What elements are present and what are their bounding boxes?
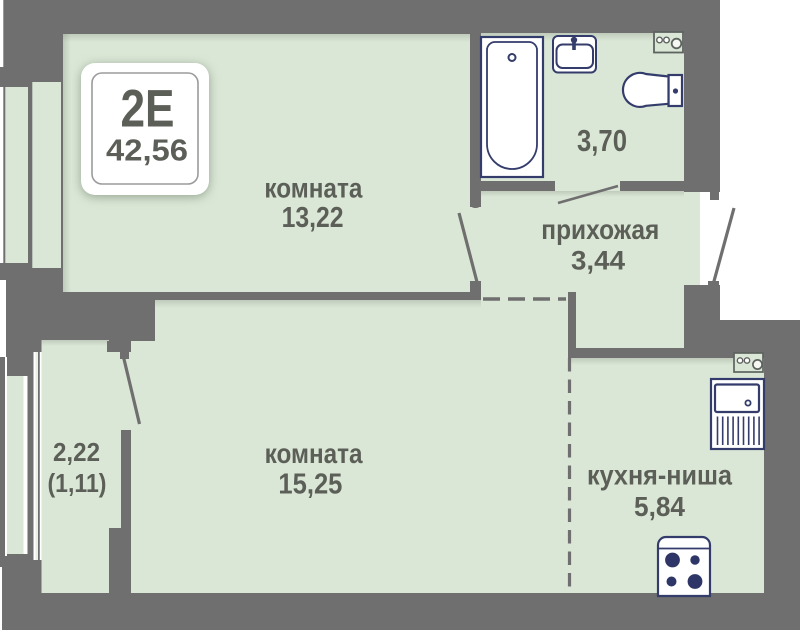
svg-text:2,22: 2,22 bbox=[53, 437, 100, 467]
svg-text:15,25: 15,25 bbox=[278, 469, 342, 501]
svg-text:комната: комната bbox=[264, 173, 363, 204]
svg-text:3,44: 3,44 bbox=[571, 246, 625, 276]
svg-text:13,22: 13,22 bbox=[282, 202, 344, 234]
svg-text:3,70: 3,70 bbox=[577, 123, 627, 158]
svg-text:5,84: 5,84 bbox=[634, 491, 686, 522]
svg-text:(1,11): (1,11) bbox=[48, 468, 107, 498]
svg-text:42,56: 42,56 bbox=[106, 134, 188, 168]
svg-text:2E: 2E bbox=[121, 80, 175, 139]
svg-text:прихожая: прихожая bbox=[541, 214, 659, 245]
svg-text:комната: комната bbox=[265, 438, 364, 469]
svg-text:кухня-ниша: кухня-ниша bbox=[587, 460, 732, 491]
